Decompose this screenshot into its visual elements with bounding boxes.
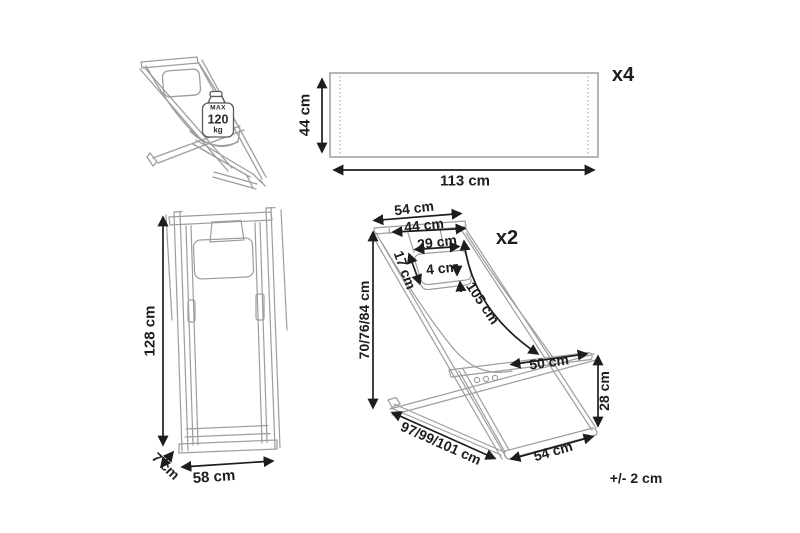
persp-quantity-label: x2 (496, 228, 518, 248)
fabric-panel-diagram (322, 73, 598, 170)
front-width-label: 58 cm (192, 468, 235, 486)
front-height-label: 128 cm (143, 306, 158, 357)
fabric-width-label: 113 cm (440, 174, 490, 189)
weight-unit: kg (213, 127, 222, 135)
max-weight-label: MAX 120 kg (208, 106, 229, 135)
front-view-diagram (166, 208, 287, 453)
persp-height-label: 70/76/84 cm (357, 281, 371, 360)
persp-seat-height-label: 28 cm (597, 371, 611, 411)
fabric-quantity-label: x4 (612, 65, 634, 85)
weight-prefix: MAX (210, 106, 226, 113)
weight-value: 120 (208, 113, 229, 126)
fabric-height-label: 44 cm (298, 94, 313, 137)
persp-inner-width-label: 44 cm (404, 216, 445, 234)
dimension-diagram-page: MAX 120 kg 44 cm 113 cm x4 128 cm 7 cm 5… (0, 0, 800, 533)
persp-pillow-thickness-label: 4 cm (425, 259, 458, 276)
tolerance-note: +/- 2 cm (610, 471, 663, 485)
